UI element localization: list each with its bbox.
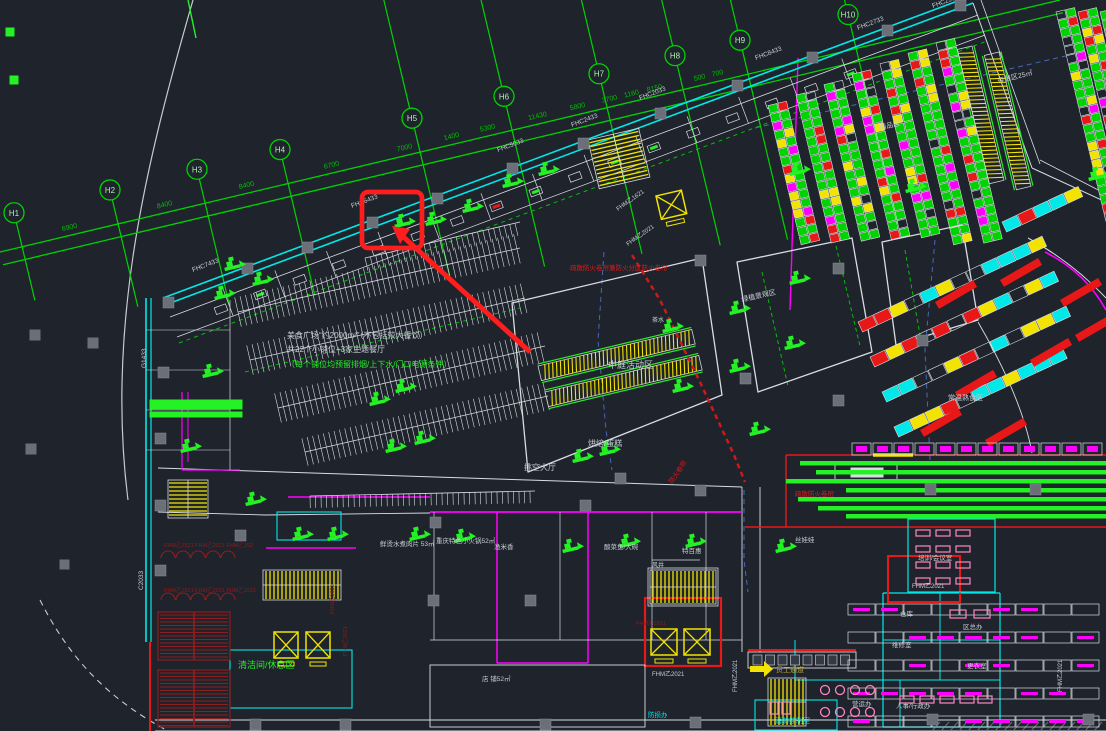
svg-text:H9: H9 — [735, 36, 746, 45]
svg-text:风井: 风井 — [652, 561, 664, 569]
svg-text:H7: H7 — [594, 70, 605, 79]
svg-text:区总办: 区总办 — [963, 622, 983, 631]
svg-text:G1433: G1433 — [141, 348, 148, 368]
svg-text:维修室: 维修室 — [892, 640, 912, 649]
svg-text:疏散防火卷帘兼防火分区防火卷帘: 疏散防火卷帘兼防火分区防火卷帘 — [570, 263, 668, 272]
svg-text:茶水: 茶水 — [652, 316, 664, 324]
svg-text:C2033: C2033 — [138, 570, 145, 590]
svg-text:H4: H4 — [275, 146, 286, 155]
svg-text:FHM乙2021: FHM乙2021 — [912, 583, 945, 590]
svg-text:鲜烫水煮肉片 53㎡: 鲜烫水煮肉片 53㎡ — [380, 539, 435, 548]
svg-text:FHM乙2021: FHM乙2021 — [732, 659, 739, 692]
svg-text:员工通道: 员工通道 — [776, 665, 804, 674]
svg-text:中庭活动区: 中庭活动区 — [608, 359, 653, 370]
svg-text:特百惠: 特百惠 — [682, 546, 702, 555]
svg-text:H2: H2 — [105, 186, 116, 195]
svg-text:（每个铺位均预留排烟/上下水/门口电源条件）: （每个铺位均预留排烟/上下水/门口电源条件） — [287, 359, 451, 369]
svg-text:H3: H3 — [192, 165, 203, 174]
svg-text:培训/会议室: 培训/会议室 — [918, 553, 953, 562]
svg-text:FHM乙1621: FHM乙1621 — [329, 584, 336, 614]
svg-text:H10: H10 — [841, 11, 856, 20]
svg-text:常温熟食区: 常温熟食区 — [948, 393, 983, 402]
svg-text:挑空大厅: 挑空大厅 — [524, 462, 556, 472]
svg-text:FHM乙1521: FHM乙1521 — [636, 620, 666, 627]
svg-text:FHM乙1521 FHM乙2021 FHM乙152: FHM乙1521 FHM乙2021 FHM乙152 — [164, 542, 253, 549]
floor-plan-canvas: H1H2H3H4H5H6H7H8H9H106900840084006700700… — [0, 0, 1106, 731]
svg-text:H1: H1 — [9, 209, 20, 218]
svg-text:更衣室: 更衣室 — [967, 661, 987, 670]
svg-text:清洁间/休息区: 清洁间/休息区 — [238, 659, 295, 670]
svg-text:防损办: 防损办 — [648, 710, 668, 719]
svg-text:FHM乙2021: FHM乙2021 — [652, 671, 685, 678]
svg-text:烘焙/蛋糕: 烘焙/蛋糕 — [588, 438, 622, 448]
svg-text:疏散防火卷帘: 疏散防火卷帘 — [795, 489, 835, 498]
svg-text:美食广场“约2000m²”（不包括较大餐饮）: 美食广场“约2000m²”（不包括较大餐饮） — [287, 330, 427, 340]
svg-text:H5: H5 — [407, 114, 418, 123]
svg-text:营运办: 营运办 — [852, 699, 872, 708]
svg-text:重庆特色小火锅52㎡: 重庆特色小火锅52㎡ — [436, 536, 496, 545]
svg-text:店 铺52㎡: 店 铺52㎡ — [482, 674, 511, 683]
svg-text:H8: H8 — [670, 52, 681, 61]
svg-text:消防控制室: 消防控制室 — [775, 716, 810, 725]
svg-text:共22个小铺位+3家主题餐厅: 共22个小铺位+3家主题餐厅 — [287, 344, 385, 354]
svg-text:人事/行政办: 人事/行政办 — [896, 701, 931, 710]
svg-text:仓库: 仓库 — [900, 609, 914, 618]
cad-floor-plan-viewport[interactable]: H1H2H3H4H5H6H7H8H9H106900840084006700700… — [0, 0, 1106, 731]
svg-text:FHM乙2021: FHM乙2021 — [342, 626, 349, 656]
svg-text:丝娃娃: 丝娃娃 — [795, 535, 815, 544]
svg-text:FHM乙1521 FHM乙2021 FHM乙1521: FHM乙1521 FHM乙2021 FHM乙1521 — [164, 587, 256, 594]
svg-text:渔米香: 渔米香 — [494, 542, 514, 551]
svg-text:FHM乙2021: FHM乙2021 — [1057, 659, 1064, 692]
svg-text:酸菜鱼/大碗: 酸菜鱼/大碗 — [604, 542, 639, 551]
svg-text:H6: H6 — [499, 92, 510, 101]
